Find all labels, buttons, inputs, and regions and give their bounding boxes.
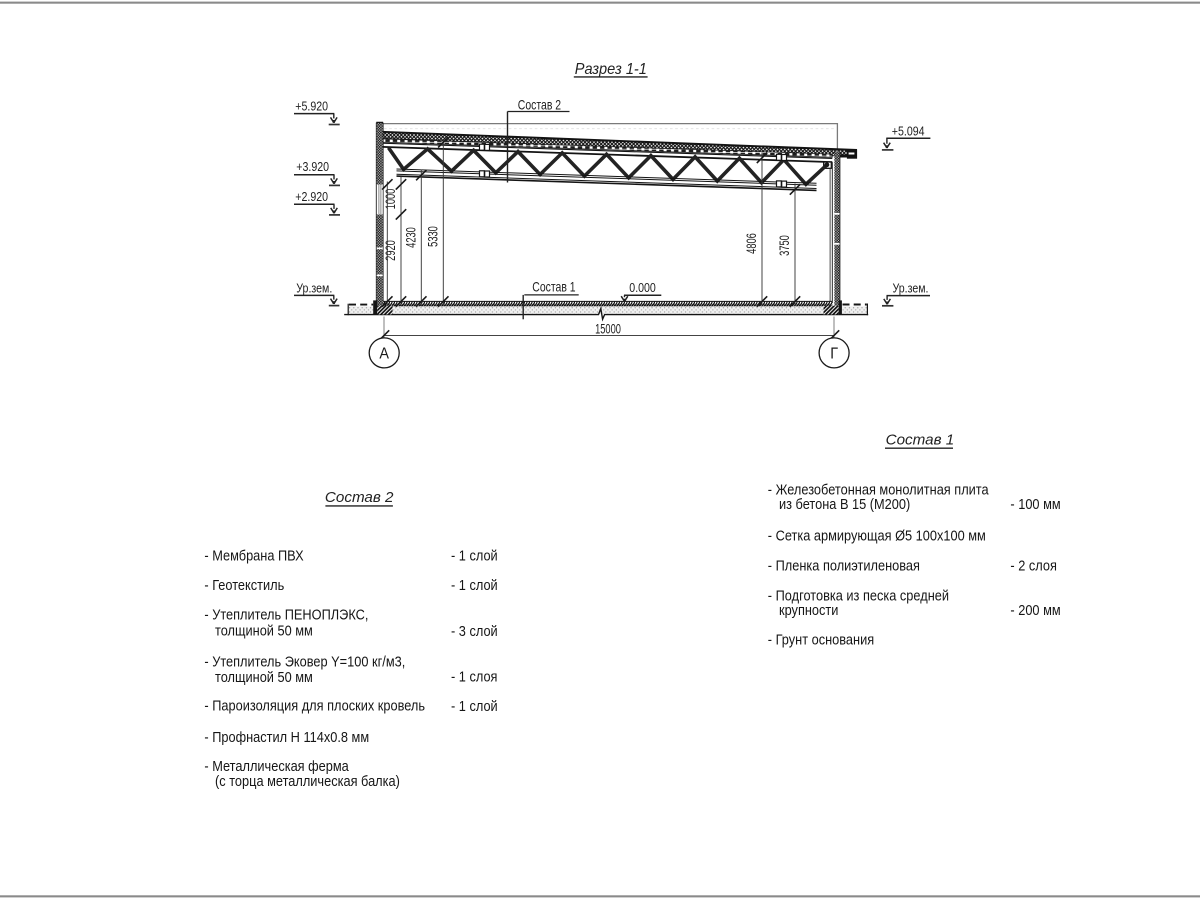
svg-text:Состав 1: Состав 1 [886, 431, 955, 448]
svg-text:- Утеплитель Эковер Y=100 кг/м: - Утеплитель Эковер Y=100 кг/м3, [204, 654, 405, 670]
svg-text:+3.920: +3.920 [296, 159, 329, 174]
svg-text:+5.920: +5.920 [295, 98, 328, 113]
svg-text:4806: 4806 [743, 233, 760, 254]
svg-text:- 2 слоя: - 2 слоя [1010, 558, 1056, 574]
svg-text:0.000: 0.000 [629, 280, 656, 295]
svg-text:- 1 слой: - 1 слой [451, 698, 498, 714]
svg-text:4230: 4230 [403, 227, 420, 248]
svg-text:из бетона В 15 (М200): из бетона В 15 (М200) [779, 497, 910, 513]
svg-text:- Металлическая ферма: - Металлическая ферма [204, 759, 349, 775]
svg-text:- 1 слоя: - 1 слоя [451, 669, 497, 685]
svg-text:- 1 слой: - 1 слой [451, 577, 498, 593]
svg-text:- Утеплитель ПЕНОПЛЭКС,: - Утеплитель ПЕНОПЛЭКС, [204, 607, 368, 623]
svg-text:толщиной 50 мм: толщиной 50 мм [215, 670, 313, 686]
svg-text:- Пленка полиэтиленовая: - Пленка полиэтиленовая [768, 558, 920, 574]
svg-text:Состав 2: Состав 2 [325, 489, 394, 506]
svg-text:1000: 1000 [382, 188, 399, 209]
svg-text:+5.094: +5.094 [892, 123, 925, 138]
svg-text:Разрез 1-1: Разрез 1-1 [575, 61, 647, 79]
svg-text:- Сетка армирующая Ø5 100х100: - Сетка армирующая Ø5 100х100 мм [768, 528, 986, 544]
svg-text:15000: 15000 [595, 320, 621, 337]
svg-text:(с торца металлическая балка): (с торца металлическая балка) [215, 774, 400, 790]
svg-text:+2.920: +2.920 [295, 189, 328, 204]
svg-text:- Железобетонная монолитная п: - Железобетонная монолитная плита [768, 482, 989, 498]
svg-text:Состав 1: Состав 1 [532, 279, 576, 295]
svg-text:- 100 мм: - 100 мм [1010, 497, 1060, 513]
svg-text:Ур.зем.: Ур.зем. [296, 280, 332, 295]
svg-text:3750: 3750 [776, 235, 793, 256]
svg-text:крупности: крупности [779, 602, 838, 618]
svg-text:Состав 2: Состав 2 [518, 97, 562, 113]
svg-text:- Профнастил Н 114х0.8 мм: - Профнастил Н 114х0.8 мм [204, 729, 369, 745]
svg-text:Ур.зем.: Ур.зем. [893, 280, 929, 295]
svg-text:- 200 мм: - 200 мм [1010, 602, 1060, 618]
svg-text:- Мембрана ПВХ: - Мембрана ПВХ [204, 548, 303, 564]
svg-text:Г: Г [830, 345, 838, 363]
svg-text:А: А [379, 345, 389, 363]
svg-text:2920: 2920 [382, 240, 399, 261]
svg-text:- Грунт основания: - Грунт основания [768, 632, 874, 648]
svg-text:5330: 5330 [425, 226, 442, 247]
svg-text:толщиной 50 мм: толщиной 50 мм [215, 623, 313, 639]
svg-text:- 1 слой: - 1 слой [451, 548, 498, 564]
svg-text:- Пароизоляция для плоских кро: - Пароизоляция для плоских кровель [204, 698, 425, 714]
svg-text:- 3 слой: - 3 слой [451, 623, 498, 639]
svg-text:- Геотекстиль: - Геотекстиль [204, 578, 284, 594]
